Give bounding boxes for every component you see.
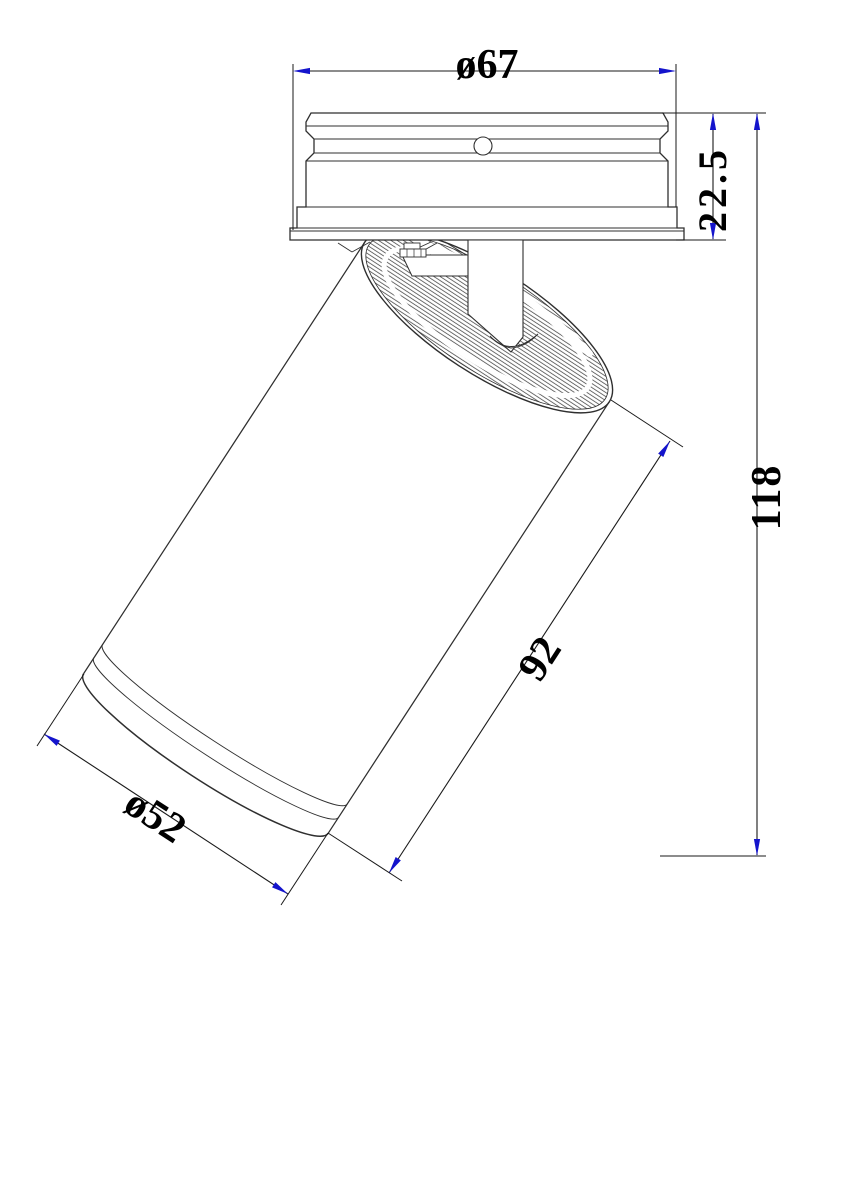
ext-line-head-bottom: [328, 833, 402, 881]
label-canopy-height: 22.5: [690, 146, 735, 232]
mounting-canopy: [290, 113, 684, 240]
canopy-outline: [290, 113, 684, 240]
head-trim-ring-line-1: [92, 645, 348, 821]
head-trim-ring-line-2: [83, 658, 339, 834]
label-head-diameter: ø52: [116, 780, 194, 853]
canopy-screw-hole: [474, 137, 492, 155]
pivot-bolt-head: [404, 243, 420, 249]
arrow-overall-top: [754, 113, 760, 130]
ext-line-head-top: [611, 400, 683, 447]
label-overall-height: 118: [744, 464, 790, 531]
arrow-canopy-dia-right: [659, 68, 676, 74]
pivot-bolt-nut: [400, 249, 426, 257]
ext-line-head-dia-right: [281, 833, 328, 905]
drawing-sheet: ø67 22.5 118 92 ø52: [0, 0, 848, 1200]
spotlight-dimension-drawing: ø67 22.5 118 92 ø52: [0, 0, 848, 1200]
arrow-overall-bottom: [754, 839, 760, 856]
arrow-canopy-height-top: [710, 113, 716, 130]
arrow-head-dia-right: [272, 882, 290, 896]
ext-line-head-dia-left: [37, 674, 84, 746]
yoke-side-plate: [402, 255, 468, 276]
label-canopy-diameter: ø67: [456, 42, 519, 88]
arrow-head-length-top: [658, 439, 672, 457]
arrow-canopy-dia-left: [293, 68, 310, 74]
label-head-length: 92: [509, 629, 570, 689]
head-front-edge: [69, 674, 328, 855]
lamp-head: [69, 199, 637, 855]
